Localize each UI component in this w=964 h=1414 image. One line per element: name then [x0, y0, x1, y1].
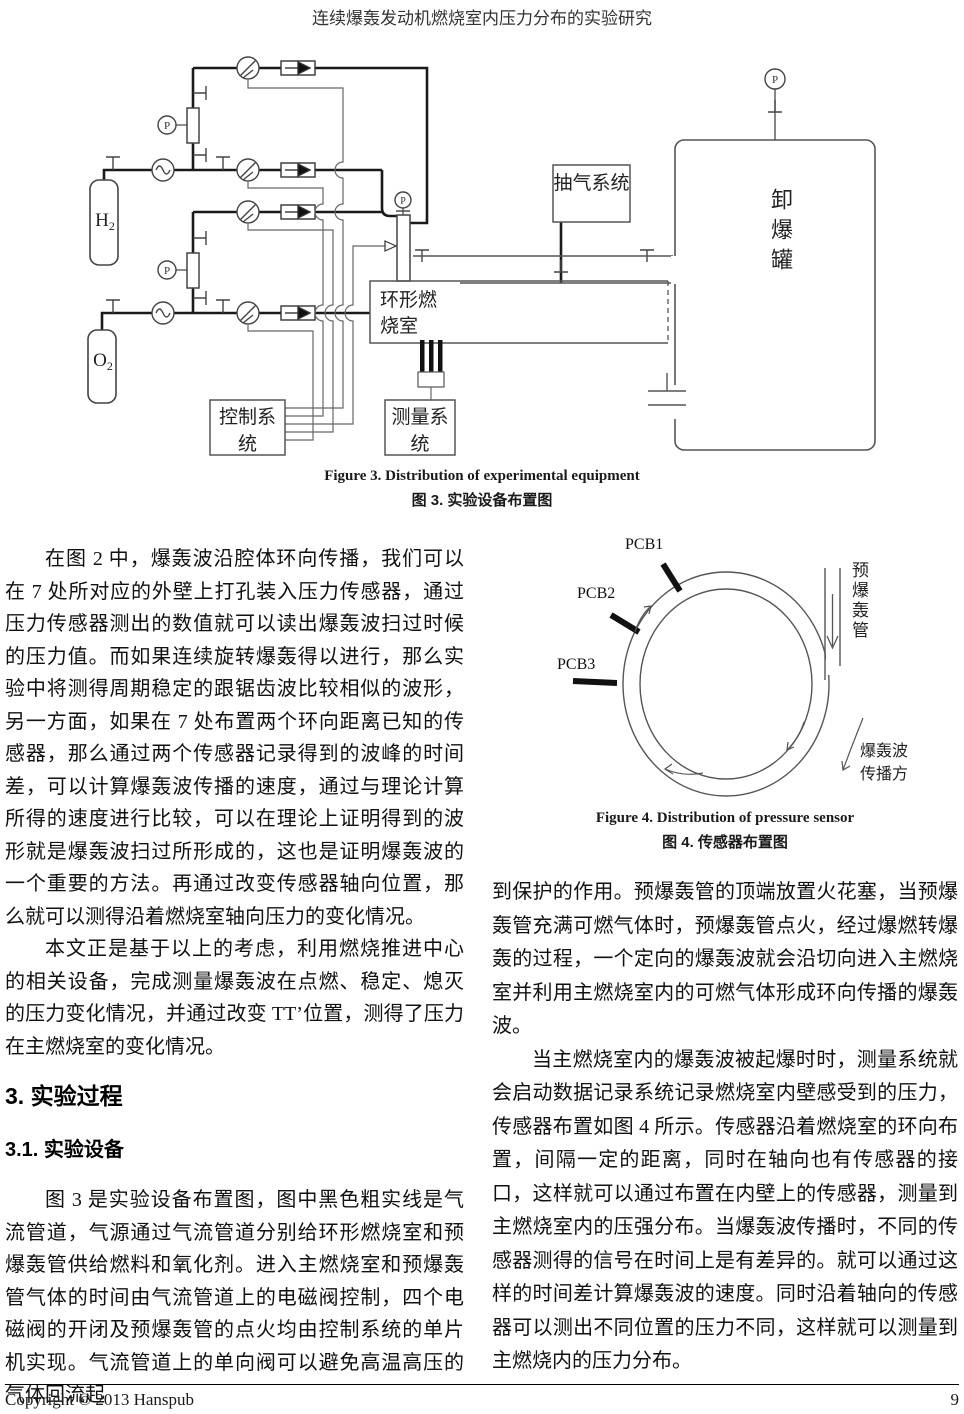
predet-tube-label: 预爆轰管: [846, 561, 871, 656]
pump-system-label: 抽气系统: [553, 170, 630, 197]
figure3-equipment-diagram: P P: [85, 48, 885, 466]
check-valve-icon: [281, 61, 315, 320]
o2-cylinder-label: O2: [90, 350, 116, 374]
paragraph: 在图 2 中，爆轰波沿腔体环向传播，我们可以在 7 处所对应的外壁上打孔装入压力…: [5, 543, 464, 933]
subsection-heading: 3.1. 实验设备: [5, 1133, 464, 1162]
figure4-sensor-diagram: PCB1 PCB2 PCB3 预爆轰管 爆轰波传播方: [540, 528, 960, 812]
pcb2-label: PCB2: [577, 585, 615, 603]
annular-chamber-label: 环形燃烧室: [380, 288, 446, 340]
figure4-caption: Figure 4. Distribution of pressure senso…: [492, 810, 958, 852]
exhaust-duct: [413, 256, 673, 283]
control-signal-lines: [248, 80, 385, 440]
flow-valve-icon: [237, 57, 259, 324]
pressure-regulator-icon: [187, 108, 199, 143]
pressure-gauge-icon: P: [158, 116, 187, 134]
control-system-label: 控制系统: [210, 404, 285, 458]
pressure-gauge-icon: P: [765, 69, 785, 140]
paragraph: 本文正是基于以上的考虑，利用燃烧推进中心的相关设备，完成测量爆轰波在点燃、稳定、…: [5, 933, 464, 1063]
left-column: 在图 2 中，爆轰波沿腔体环向传播，我们可以在 7 处所对应的外壁上打孔装入压力…: [5, 543, 464, 1412]
drain-valve-icon: [648, 373, 686, 405]
paragraph: 到保护的作用。预爆轰管的顶端放置火花塞，当预爆轰管充满可燃气体时，预爆轰管点火，…: [492, 876, 958, 1044]
right-column: 到保护的作用。预爆轰管的顶端放置火花塞，当预爆轰管充满可燃气体时，预爆轰管点火，…: [492, 876, 958, 1379]
predetonation-tube: [397, 215, 410, 281]
duct-opening: [671, 256, 679, 284]
svg-text:P: P: [400, 196, 406, 207]
shutoff-valve-icon: [106, 86, 782, 313]
pressure-sensor-plugs: [418, 340, 444, 400]
svg-text:P: P: [772, 74, 778, 86]
chamber-inner-wall: [640, 589, 812, 779]
paragraph: 图 3 是实验设备布置图，图中黑色粗实线是气流管道，气源通过气流管道分别给环形燃…: [5, 1184, 464, 1412]
copyright-text: Copyright © 2013 Hanspub: [5, 1390, 194, 1410]
figure3-caption-en: Figure 3. Distribution of experimental e…: [0, 468, 964, 485]
figure3-caption: Figure 3. Distribution of experimental e…: [0, 468, 964, 510]
drain-opening: [671, 385, 679, 419]
flow-direction-arrows: [635, 606, 804, 774]
measurement-system-label: 测量系统: [385, 404, 455, 458]
pcb3-label: PCB3: [557, 656, 595, 674]
wave-direction-label: 爆轰波传播方: [860, 740, 914, 786]
pressure-gauge-icon: P: [158, 261, 187, 279]
page-title: 连续爆轰发动机燃烧室内压力分布的实验研究: [0, 4, 964, 29]
paragraph: 当主燃烧室内的爆轰波被起爆时时，测量系统就会启动数据记录系统记录燃烧室内壁感受到…: [492, 1044, 958, 1379]
figure4-caption-en: Figure 4. Distribution of pressure senso…: [492, 810, 958, 827]
solenoid-valve-icon: [152, 159, 174, 324]
h2-cylinder-label: H2: [92, 210, 118, 234]
igniter-icon: [385, 241, 396, 251]
figure3-caption-zh: 图 3. 实验设备布置图: [0, 489, 964, 510]
svg-text:P: P: [164, 265, 170, 277]
page-footer: Copyright © 2013 Hanspub 9: [5, 1384, 959, 1410]
discharge-tank-label: 卸爆罐: [764, 188, 796, 308]
section-heading: 3. 实验过程: [5, 1077, 464, 1111]
chamber-outer-wall: [623, 572, 829, 796]
page-number: 9: [951, 1390, 960, 1410]
svg-text:P: P: [164, 120, 170, 132]
paper-page: { "header": { "title": "连续爆轰发动机燃烧室内压力分布的…: [0, 0, 964, 1414]
gas-pipes: [102, 68, 561, 330]
pressure-regulator-icon: [187, 253, 199, 288]
figure4-caption-zh: 图 4. 传感器布置图: [492, 831, 958, 852]
pcb1-label: PCB1: [625, 536, 663, 554]
